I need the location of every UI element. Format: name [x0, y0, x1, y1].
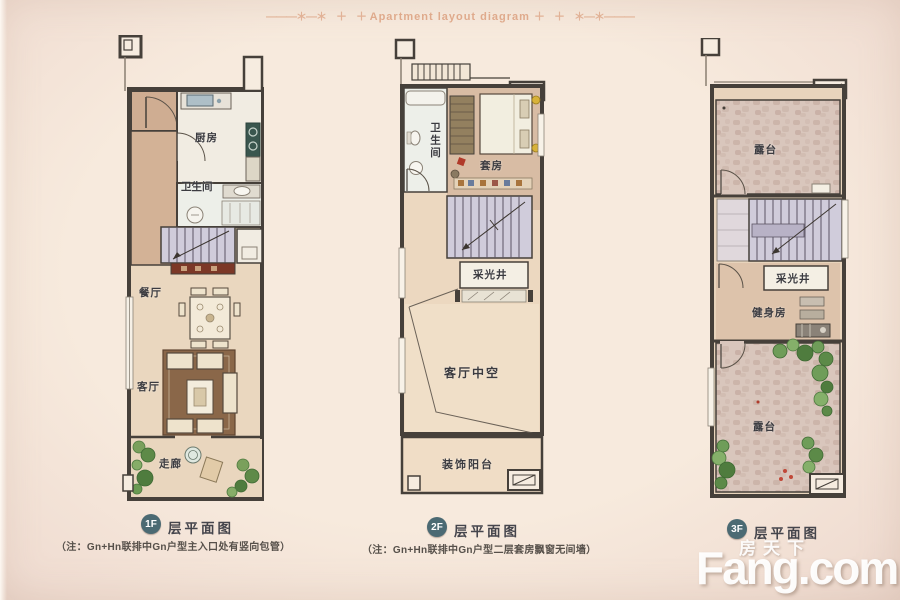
window-icon	[399, 338, 405, 393]
kitchen-sink-icon	[187, 95, 213, 106]
floorplan-3f-drawing	[692, 38, 857, 508]
stairs-icon	[161, 227, 235, 263]
kitchen-area	[175, 91, 262, 183]
bathroom-sink-icon	[410, 162, 423, 175]
floorplan-1f: 厨房 卫生间 餐厅 客厅 走廊	[115, 35, 265, 505]
floorplan-1f-drawing	[115, 35, 265, 505]
bathtub-icon	[406, 91, 445, 105]
wardrobe-icon	[450, 96, 474, 154]
window-icon	[399, 248, 405, 298]
bed-icon	[480, 94, 540, 154]
floor-badge-1f: 1F	[141, 514, 161, 534]
entry-porch	[131, 91, 177, 131]
window-icon	[538, 114, 544, 156]
bay-window-seat-icon	[454, 178, 532, 189]
window-icon	[812, 184, 830, 193]
corridor-area	[123, 437, 262, 497]
room-label-kitchen: 厨房	[195, 130, 218, 145]
room-label-corridor: 走廊	[159, 456, 182, 471]
page-title: Apartment layout diagram	[370, 11, 530, 23]
header-decor-right: ＋ ＋ ＊—＊———	[534, 11, 634, 23]
chimney-icon	[702, 38, 814, 86]
room-label-lightwell: 采光井	[776, 271, 811, 286]
duct-box	[237, 229, 262, 263]
room-label-bathroom: 卫生间	[428, 122, 443, 160]
gym-equipment-icon	[800, 310, 824, 319]
stairs-icon	[749, 199, 842, 261]
room-label-lightwell: 采光井	[473, 267, 508, 282]
bathroom-sink-icon	[234, 187, 250, 196]
stairs-icon	[447, 196, 532, 258]
floor-note-2f: （注：Gn+Hn联排中Gn户型二层套房飘窗无间墙）	[362, 541, 596, 556]
window-icon	[842, 200, 848, 258]
bathtub-icon	[222, 201, 260, 225]
room-label-bathroom: 卫生间	[181, 179, 213, 194]
gym-equipment-icon	[800, 297, 824, 306]
flue-box-icon	[810, 474, 844, 494]
chimney-icon	[396, 40, 414, 88]
chimney-icon	[120, 36, 141, 91]
room-label-terrace-top: 露台	[754, 142, 777, 157]
room-label-balcony: 装饰阳台	[442, 456, 494, 472]
floorplan-2f: 卫生间 套房 采光井 客厅中空 装饰阳台	[392, 38, 547, 508]
void-area	[405, 289, 539, 433]
terrace-bottom-area	[712, 339, 840, 492]
floor-badge-2f: 2F	[427, 517, 447, 537]
room-label-living: 客厅	[137, 379, 160, 394]
room-label-suite: 套房	[480, 158, 503, 173]
floor-caption-2f: 层平面图	[454, 520, 520, 540]
watermark-fang-com: Fang.com	[696, 541, 897, 595]
floorplan-2f-drawing	[392, 38, 547, 508]
sideboard-icon	[171, 263, 235, 274]
louver-icon	[462, 290, 526, 302]
page-header: ———＊—＊ ＋ ＋ Apartment layout diagram ＋ ＋ …	[0, 8, 900, 24]
room-label-gym: 健身房	[752, 305, 787, 320]
room-label-void: 客厅中空	[444, 364, 500, 381]
toilet-icon	[410, 131, 420, 145]
room-label-terrace-bottom: 露台	[753, 419, 776, 434]
terrace-top-area	[716, 100, 840, 196]
treadmill-icon	[796, 324, 830, 337]
floor-note-1f: （注：Gn+Hn联排中Gn户型主入口处有竖向包管）	[56, 538, 290, 553]
lamp-icon	[532, 96, 540, 104]
railing-icon	[412, 64, 510, 80]
closet-icon	[717, 199, 749, 261]
stool-icon	[451, 170, 459, 178]
floor-caption-1f: 层平面图	[168, 517, 234, 537]
window-icon	[708, 368, 714, 426]
apartment-layout-page: ———＊—＊ ＋ ＋ Apartment layout diagram ＋ ＋ …	[0, 0, 900, 600]
header-decor-left: ———＊—＊ ＋ ＋	[266, 11, 366, 23]
window-bay	[244, 57, 262, 91]
room-label-dining: 餐厅	[139, 285, 162, 300]
floorplan-3f: 露台 采光井 健身房 露台	[692, 38, 857, 508]
sofa-set-icon	[163, 350, 237, 435]
round-table-icon	[185, 447, 201, 463]
